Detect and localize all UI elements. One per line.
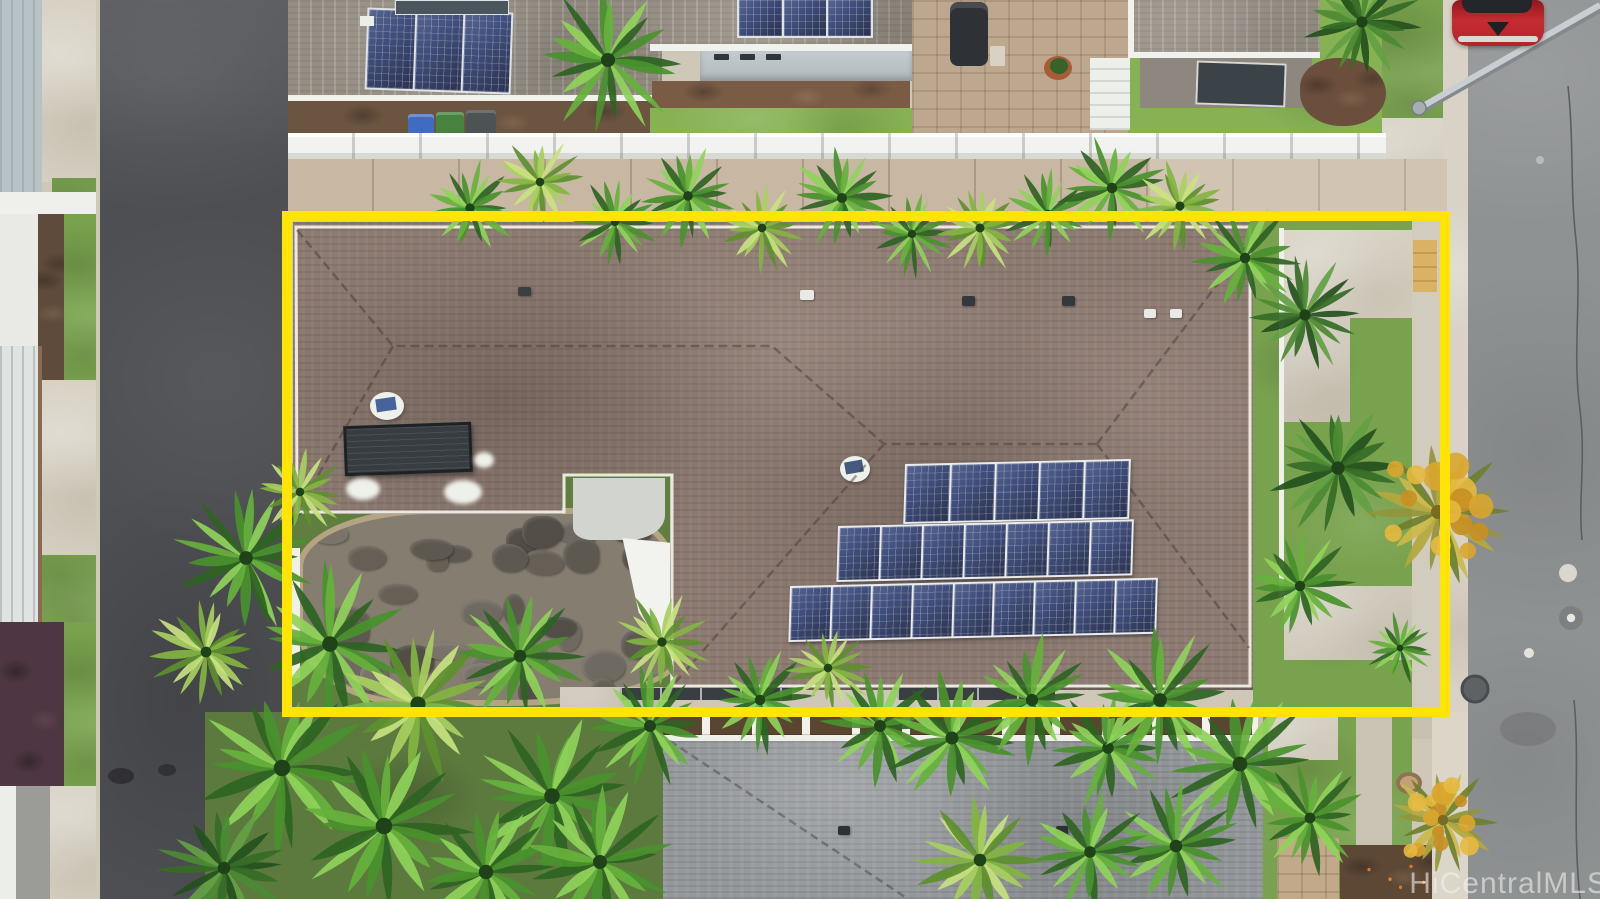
palm-crown-center	[274, 760, 291, 777]
flower-cluster	[1460, 836, 1479, 855]
palm-crown-center	[1305, 813, 1316, 824]
flower-cluster	[1458, 815, 1475, 832]
palm-crown-center	[874, 720, 886, 732]
palm-tree	[1032, 789, 1149, 899]
flower-cluster	[1470, 523, 1489, 542]
palm-crown-center	[946, 732, 959, 745]
palm-crown-center	[218, 862, 231, 875]
flower-cluster	[1455, 795, 1467, 807]
palm-crown-center	[683, 191, 693, 201]
palm-crown-center	[536, 178, 545, 187]
palm-tree	[155, 810, 284, 899]
palm-crown-center	[239, 551, 253, 565]
aerial-photo: HiCentralMLS	[0, 0, 1600, 899]
palm-crown-center	[593, 855, 607, 869]
flower-cluster	[1469, 494, 1494, 519]
watermark: HiCentralMLS	[1409, 867, 1600, 899]
palm-crown-center	[201, 647, 212, 658]
flower-cluster	[1432, 826, 1444, 838]
palm-crown-center	[544, 788, 559, 803]
palm-crown-center	[1356, 16, 1367, 27]
palm-tree	[913, 795, 1046, 899]
property-boundary-outline	[282, 211, 1450, 717]
palm-tree	[542, 0, 681, 133]
palm-tree	[1302, 0, 1422, 74]
palm-crown-center	[601, 53, 615, 67]
palm-tree	[149, 599, 252, 705]
flower-cluster	[1404, 844, 1418, 858]
flower-cluster	[1423, 809, 1440, 826]
palm-crown-center	[376, 818, 393, 835]
palm-crown-center	[644, 720, 656, 732]
palm-crown-center	[1107, 183, 1117, 193]
flower-cluster	[1460, 542, 1476, 558]
flowering-tree	[1392, 772, 1499, 874]
flower-cluster	[1408, 793, 1427, 812]
palm-crown-center	[1170, 840, 1183, 853]
palm-crown-center	[1084, 846, 1096, 858]
palm-crown-center	[1438, 815, 1448, 825]
palm-crown-center	[837, 193, 847, 203]
palm-crown-center	[479, 865, 493, 879]
palm-crown-center	[1233, 757, 1248, 772]
palm-crown-center	[1176, 202, 1185, 211]
flower-cluster	[1444, 777, 1461, 794]
palm-crown-center	[974, 854, 987, 867]
